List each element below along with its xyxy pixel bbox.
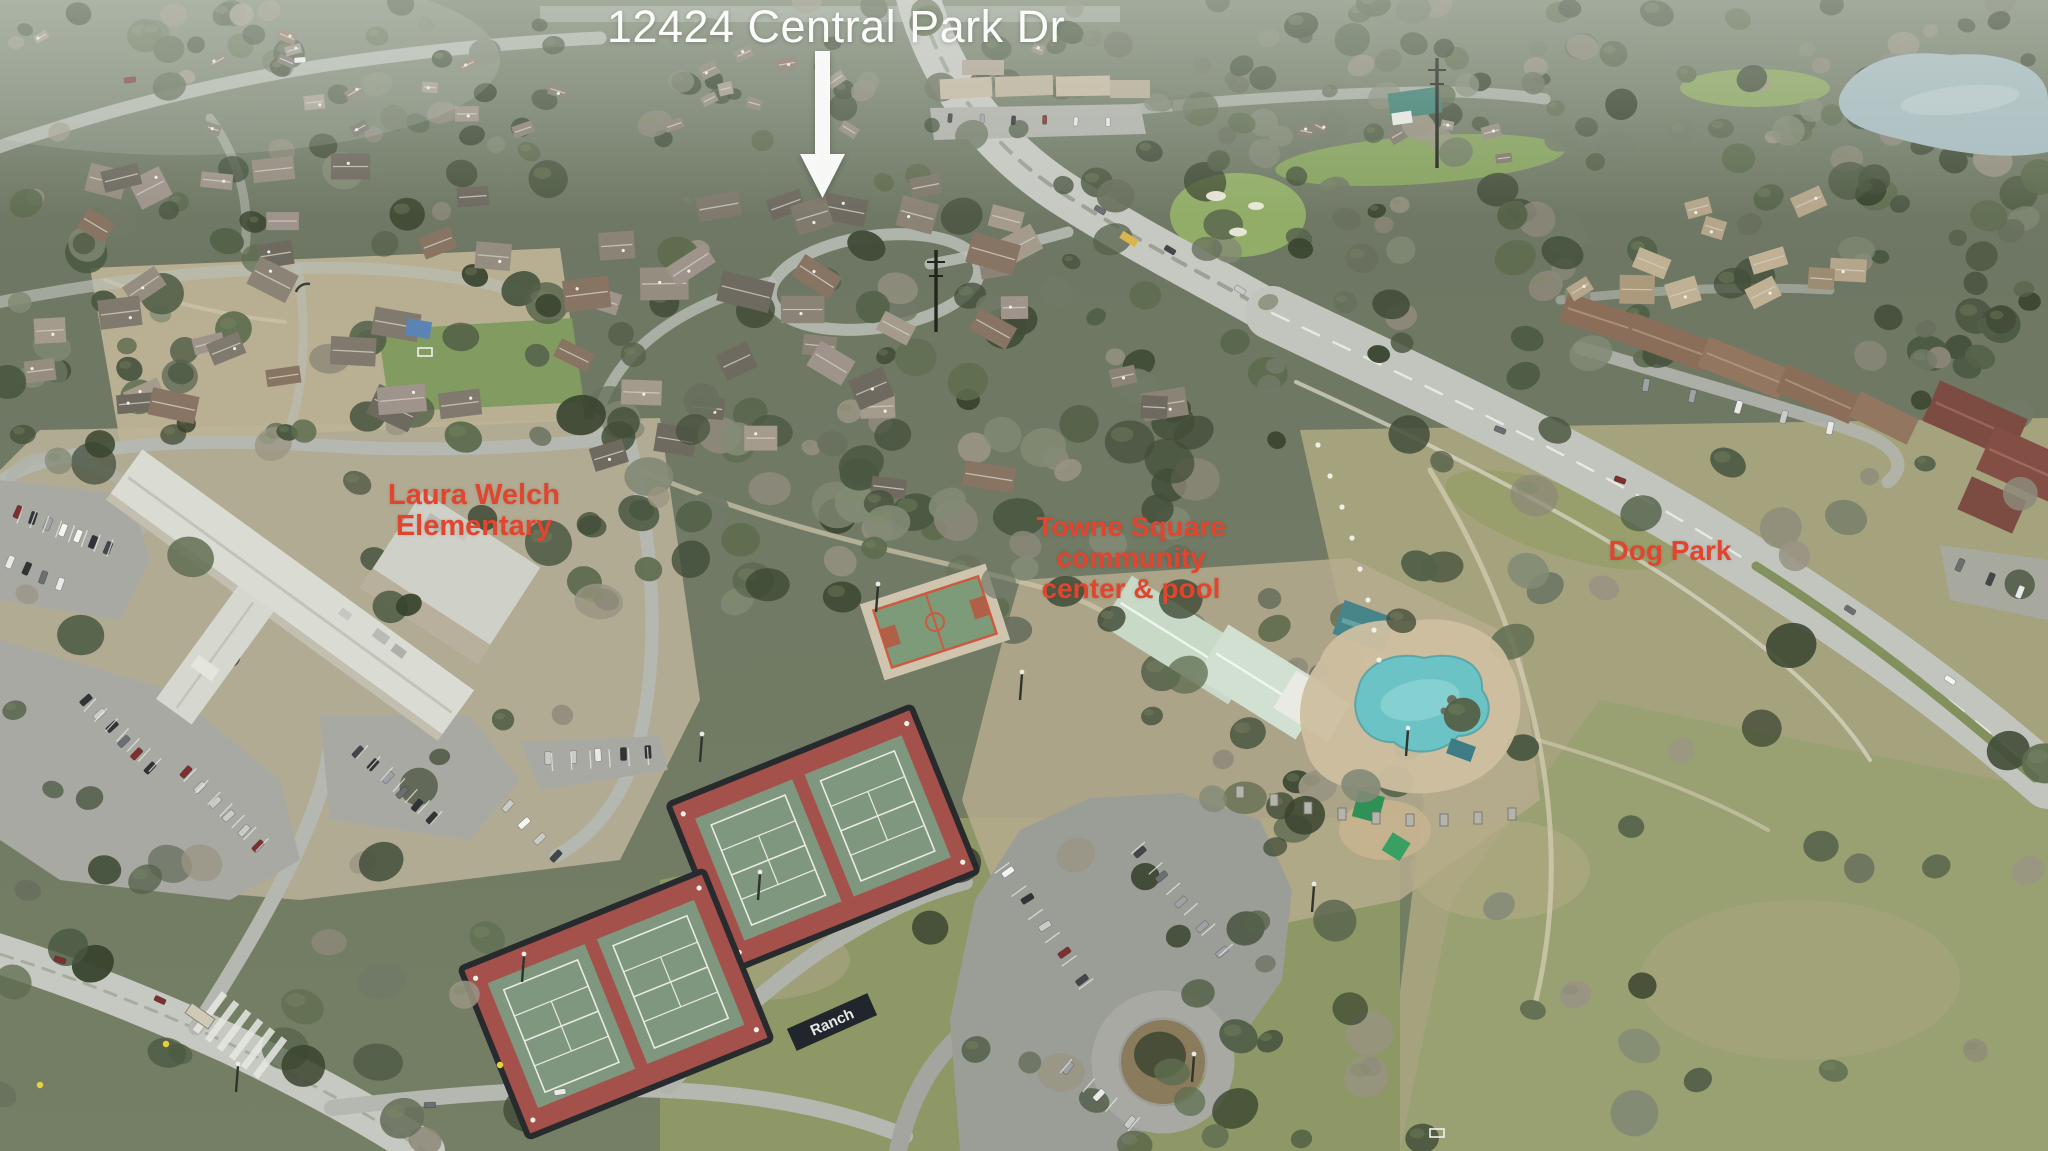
swimming-pool (1300, 619, 1520, 793)
sand-bunker (1229, 228, 1247, 237)
aerial-photo: Ranch 12424 Central Park Dr Laura Welch … (0, 0, 2048, 1151)
aerial-scene-svg: Ranch (0, 0, 2048, 1151)
